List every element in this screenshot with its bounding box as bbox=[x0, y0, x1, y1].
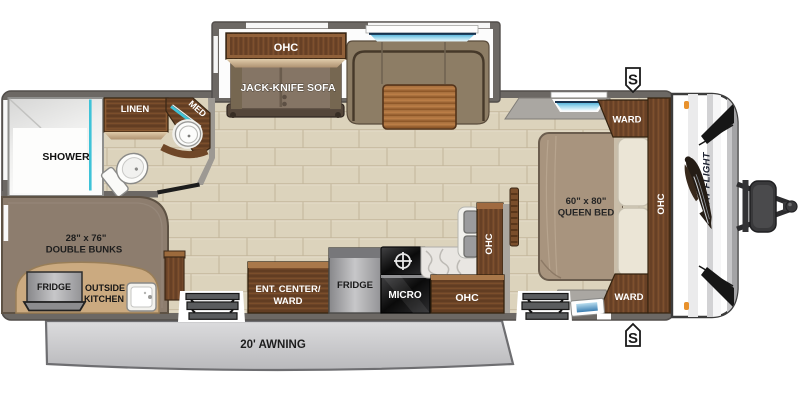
svg-text:WARD: WARD bbox=[614, 292, 643, 303]
svg-text:OHC: OHC bbox=[484, 233, 495, 254]
svg-text:S: S bbox=[628, 72, 638, 89]
svg-text:20' AWNING: 20' AWNING bbox=[240, 339, 306, 351]
svg-text:DOUBLE BUNKS: DOUBLE BUNKS bbox=[46, 245, 123, 256]
svg-text:ENT. CENTER/: ENT. CENTER/ bbox=[256, 284, 321, 295]
svg-text:JACK-KNIFE SOFA: JACK-KNIFE SOFA bbox=[240, 82, 336, 94]
svg-text:LINEN: LINEN bbox=[121, 104, 150, 115]
svg-text:OHC: OHC bbox=[656, 193, 667, 214]
svg-text:60" x 80": 60" x 80" bbox=[566, 196, 607, 207]
svg-text:OUTSIDE: OUTSIDE bbox=[85, 283, 125, 293]
svg-text:WARD: WARD bbox=[612, 115, 641, 126]
svg-text:FRIDGE: FRIDGE bbox=[37, 282, 71, 292]
svg-text:MICRO: MICRO bbox=[388, 290, 422, 301]
svg-text:WARD: WARD bbox=[273, 296, 302, 307]
svg-text:OHC: OHC bbox=[455, 292, 479, 304]
svg-text:OHC: OHC bbox=[274, 42, 299, 54]
svg-text:KITCHEN: KITCHEN bbox=[84, 294, 124, 304]
svg-text:28" x 76": 28" x 76" bbox=[66, 233, 107, 244]
svg-text:S: S bbox=[628, 330, 638, 347]
svg-text:FRIDGE: FRIDGE bbox=[337, 280, 373, 291]
svg-text:SHOWER: SHOWER bbox=[42, 151, 90, 163]
svg-text:QUEEN BED: QUEEN BED bbox=[558, 208, 615, 219]
